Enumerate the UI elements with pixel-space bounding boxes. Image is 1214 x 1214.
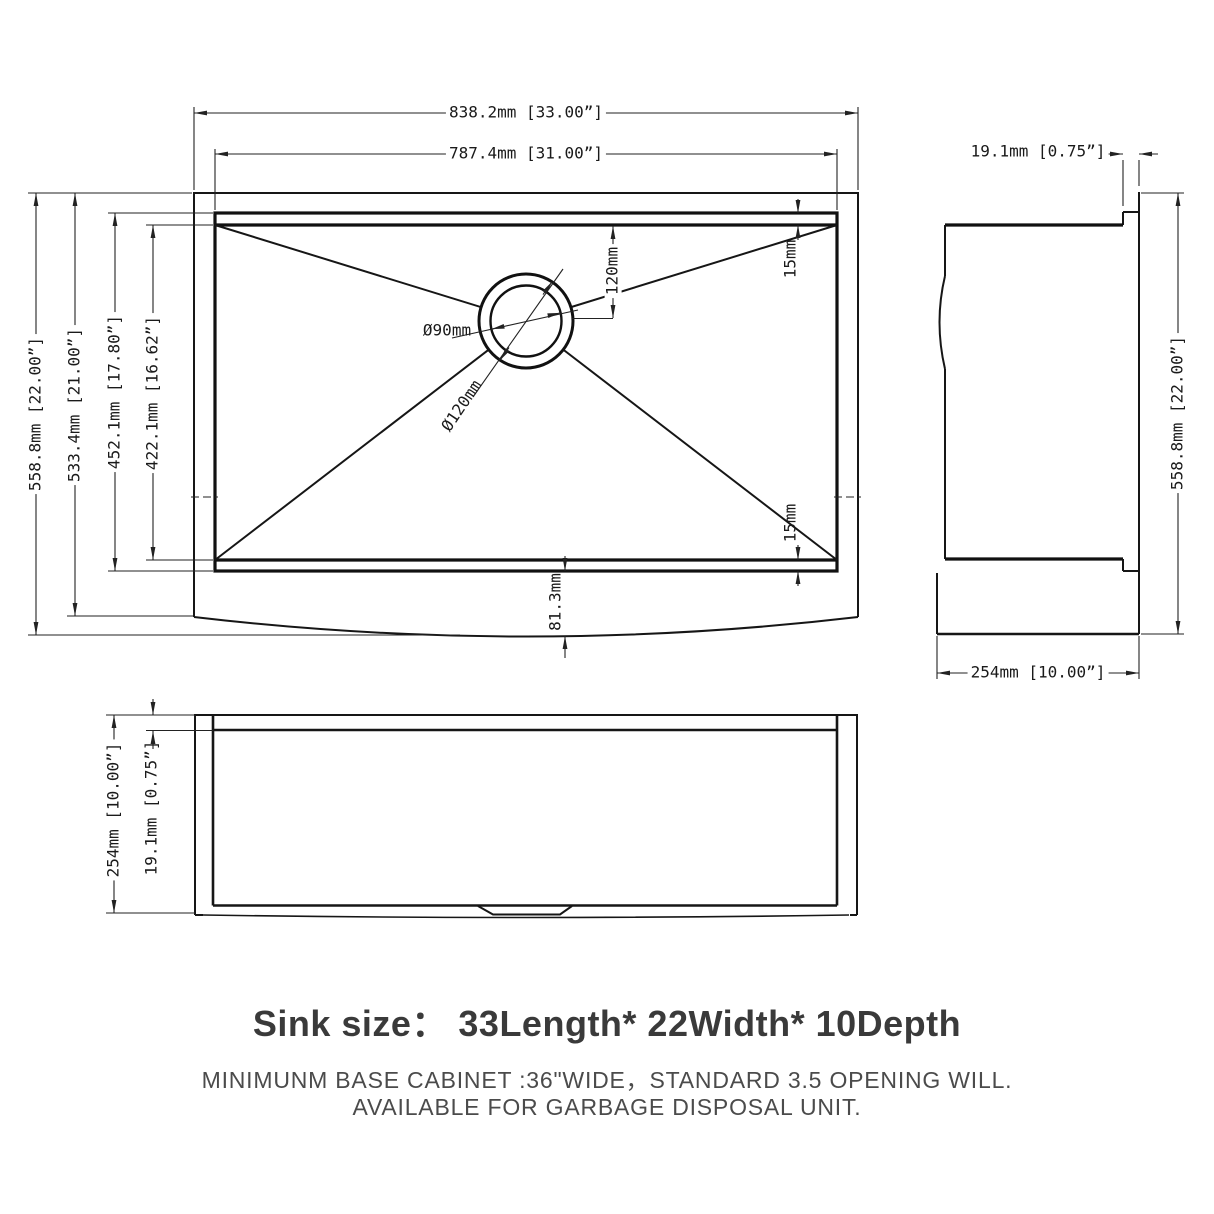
cabinet-note: MINIMUNM BASE CABINET :36"WIDE，STANDARD …	[0, 1061, 1214, 1095]
disposal-note: AVAILABLE FOR GARBAGE DISPOSAL UNIT.	[0, 1094, 1214, 1121]
dim-bowl-width: 787.4mm [31.00”]	[446, 146, 606, 163]
dim-front-rim-thickness: 19.1mm [0.75”]	[144, 738, 161, 879]
dim-side-overall-depth: 558.8mm [22.00”]	[1170, 333, 1187, 493]
dim-bowl-floor-depth: 422.1mm [16.62”]	[145, 313, 162, 473]
sink-size-title: Sink size： 33Length* 22Width* 10Depth	[0, 995, 1214, 1047]
side-view-linework	[937, 154, 1184, 679]
dim-corner-radius-front: 15mm	[783, 501, 800, 546]
dim-drain-offset: 120mm	[605, 244, 622, 298]
dim-drain-hole-diameter: Ø90mm	[420, 323, 474, 340]
dim-overall-width: 838.2mm [33.00”]	[446, 105, 606, 122]
dim-corner-radius-back: 15mm	[783, 237, 800, 282]
dim-apron-bow: 81.3mm	[548, 570, 565, 634]
dim-overall-depth: 558.8mm [22.00”]	[28, 334, 45, 494]
dim-side-rim-thickness: 19.1mm [0.75”]	[968, 144, 1109, 161]
dim-bowl-depth: 452.1mm [17.80”]	[107, 312, 124, 472]
front-view-linework	[106, 699, 857, 918]
dim-inner-depth: 533.4mm [21.00”]	[67, 325, 84, 485]
sink-dimension-drawing: 838.2mm [33.00”] 787.4mm [31.00”] 558.8m…	[0, 0, 1214, 1214]
dim-side-height: 254mm [10.00”]	[968, 665, 1109, 682]
dim-front-height: 254mm [10.00”]	[106, 740, 123, 881]
